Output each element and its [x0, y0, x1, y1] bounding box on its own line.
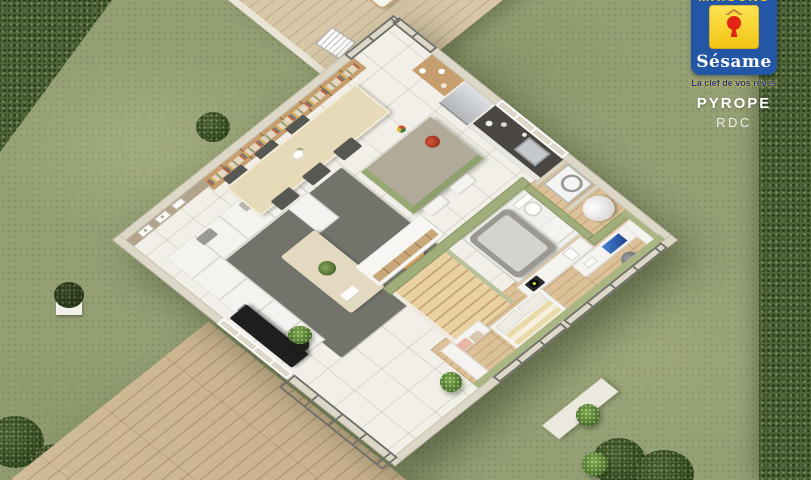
logo-brand-name: Sésame	[696, 52, 771, 72]
sun-lounger	[333, 0, 409, 10]
keyhole-icon	[727, 16, 741, 30]
logo-yellow-square	[709, 5, 759, 49]
fern	[440, 372, 462, 392]
fern	[582, 452, 608, 476]
roof-icon-inner	[728, 11, 740, 15]
counter-bowl	[484, 120, 494, 128]
sink-faucet	[521, 132, 528, 138]
fern	[576, 404, 600, 426]
hedge-top-left	[0, 0, 112, 152]
floor-label: RDC	[716, 115, 752, 130]
spiky-plant	[54, 282, 84, 308]
logo-brand-top: MAISONS	[698, 0, 769, 3]
bush-upper-left	[196, 112, 230, 142]
logo-box: MAISONS Sésame	[691, 0, 777, 75]
toy-ball	[395, 124, 408, 134]
logo-tagline: La clef de vos rêves	[691, 78, 777, 88]
terrace-parapet	[228, 0, 327, 75]
builder-logo: MAISONS Sésame La clef de vos rêves PYRO…	[679, 0, 789, 130]
counter-bowl	[500, 121, 508, 128]
floor-plan-3d	[112, 14, 678, 467]
floor-plan-render: MAISONS Sésame La clef de vos rêves PYRO…	[0, 0, 811, 480]
potted-plant-leaves	[288, 326, 312, 344]
project-name: PYROPE	[697, 95, 772, 112]
roof-icon	[725, 9, 743, 15]
